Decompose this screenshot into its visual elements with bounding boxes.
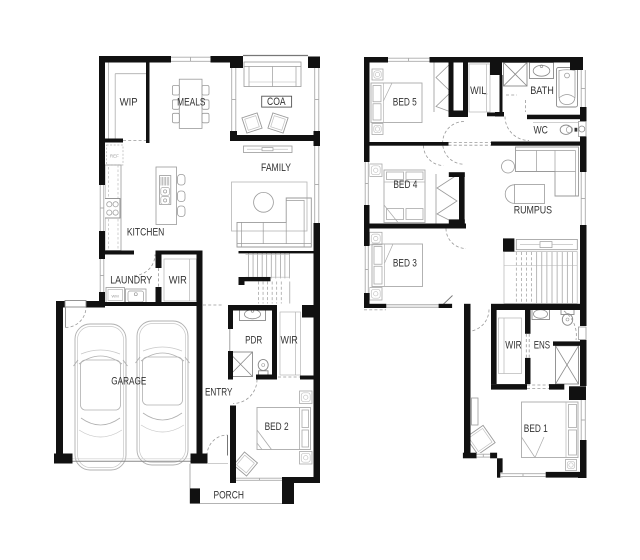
svg-text:KITCHEN: KITCHEN xyxy=(127,227,165,239)
svg-text:BED 5: BED 5 xyxy=(393,97,417,109)
svg-text:ENTRY: ENTRY xyxy=(205,387,233,399)
svg-text:BED 4: BED 4 xyxy=(393,179,417,191)
svg-text:GARAGE: GARAGE xyxy=(111,376,146,388)
svg-text:WIR: WIR xyxy=(505,339,522,351)
svg-text:LAUNDRY: LAUNDRY xyxy=(110,275,152,287)
svg-text:WM: WM xyxy=(112,294,119,299)
svg-text:MEALS: MEALS xyxy=(177,97,205,109)
svg-text:RUMPUS: RUMPUS xyxy=(514,204,552,216)
svg-text:BED 3: BED 3 xyxy=(393,258,417,270)
svg-text:WIP: WIP xyxy=(120,97,138,109)
svg-text:ENS: ENS xyxy=(534,339,550,351)
svg-text:BATH: BATH xyxy=(530,85,554,97)
svg-text:PORCH: PORCH xyxy=(213,490,244,502)
svg-text:WIL: WIL xyxy=(470,85,486,97)
svg-text:WIR: WIR xyxy=(281,335,299,347)
svg-text:REF: REF xyxy=(110,154,119,159)
svg-text:COA: COA xyxy=(267,96,286,108)
svg-text:BED 2: BED 2 xyxy=(265,421,289,433)
svg-text:PDR: PDR xyxy=(245,335,262,347)
svg-text:WC: WC xyxy=(534,125,549,137)
svg-text:FAMILY: FAMILY xyxy=(261,162,291,174)
svg-text:BED 1: BED 1 xyxy=(524,423,548,435)
svg-text:WIR: WIR xyxy=(169,275,187,287)
